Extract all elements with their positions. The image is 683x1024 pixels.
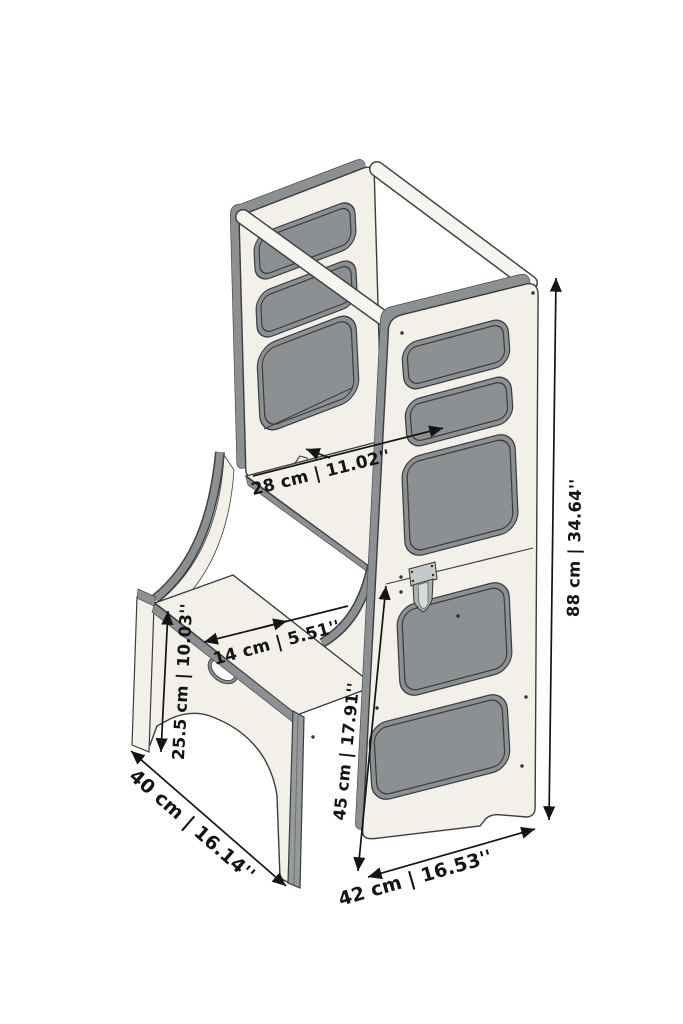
dimension-total-height: 88 cm | 34.64'' — [549, 278, 586, 820]
left-side-panel — [230, 160, 381, 477]
dimension-width: 42 cm | 16.53'' — [336, 829, 535, 911]
technical-drawing-page: 28 cm | 11.02'' 14 cm | 5.51'' 25.5 cm |… — [0, 0, 683, 1024]
front-panel-face — [363, 284, 538, 839]
total-height-label: 88 cm | 34.64'' — [564, 478, 586, 617]
technical-drawing: 28 cm | 11.02'' 14 cm | 5.51'' 25.5 cm |… — [0, 0, 683, 1024]
depth-label: 40 cm | 16.14'' — [125, 765, 259, 886]
dimension-depth: 40 cm | 16.14'' — [125, 751, 286, 886]
front-panel — [355, 274, 538, 838]
